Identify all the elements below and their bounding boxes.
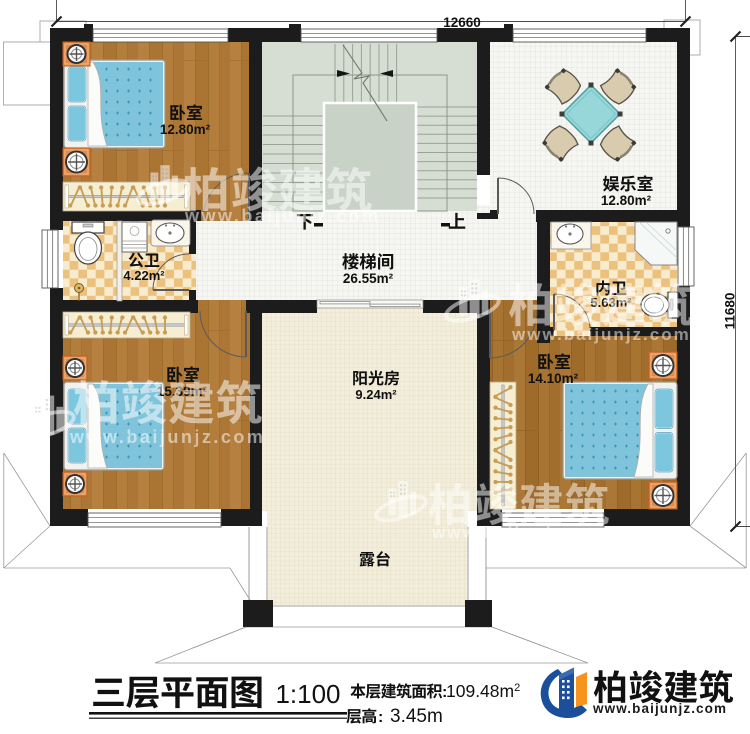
svg-text:www.baijunjz.com: www.baijunjz.com xyxy=(184,206,380,226)
svg-text:11680: 11680 xyxy=(723,293,738,330)
svg-text:www.baijunjz.com: www.baijunjz.com xyxy=(592,701,727,716)
svg-text:109.48m2: 109.48m2 xyxy=(446,681,520,701)
svg-text:12660: 12660 xyxy=(443,15,481,30)
svg-text:14.10m²: 14.10m² xyxy=(528,371,579,386)
svg-text:www.baijunjz.com: www.baijunjz.com xyxy=(69,427,265,447)
svg-text:12.80m²: 12.80m² xyxy=(601,193,652,208)
svg-text:12.80m²: 12.80m² xyxy=(160,122,211,137)
svg-text:www.baijunjz.com: www.baijunjz.com xyxy=(431,523,611,542)
svg-text:4.22m²: 4.22m² xyxy=(123,268,165,283)
svg-text:www.baijunjz.com: www.baijunjz.com xyxy=(511,325,691,344)
svg-text:3.45m: 3.45m xyxy=(390,706,443,727)
svg-text::: : xyxy=(378,709,383,726)
svg-text:1:100: 1:100 xyxy=(275,679,340,709)
svg-text:9.24m²: 9.24m² xyxy=(355,387,397,402)
svg-text:26.55m²: 26.55m² xyxy=(343,271,394,286)
